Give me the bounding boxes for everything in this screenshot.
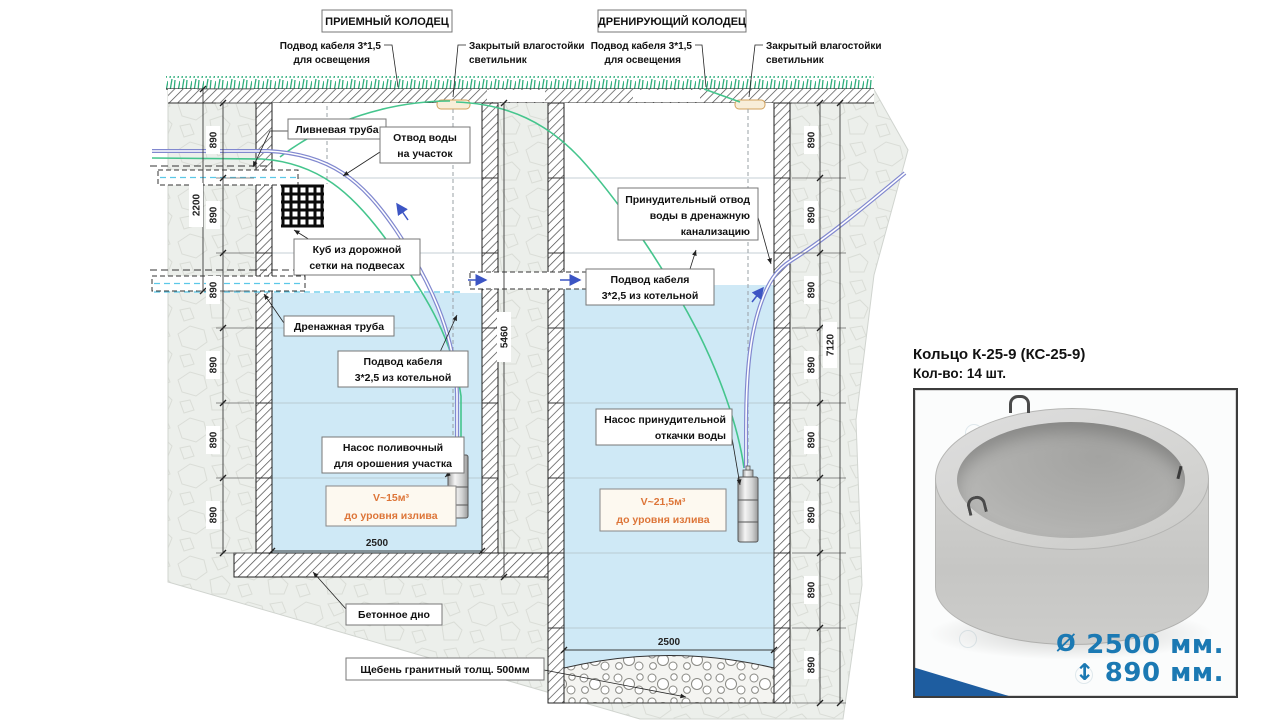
svg-text:Закрытый влагостойки: Закрытый влагостойки (766, 41, 882, 52)
dim-890: 890 (807, 656, 818, 673)
svg-text:Насос принудительной: Насос принудительной (604, 414, 726, 426)
svg-text:до уровня излива: до уровня излива (344, 510, 437, 522)
dim-890: 890 (209, 206, 220, 223)
corner-triangle (914, 657, 1012, 697)
dim-890: 890 (807, 131, 818, 148)
product-count: Кол-во: 14 шт. (913, 366, 1239, 381)
diameter-row: Ø 2500 мм. (1056, 631, 1224, 660)
svg-text:светильник: светильник (469, 55, 528, 66)
product-diameter: 2500 мм. (1086, 631, 1224, 660)
svg-text:для орошения участка: для орошения участка (334, 458, 452, 470)
svg-text:ДРЕНИРУЮЩИЙ КОЛОДЕЦ: ДРЕНИРУЮЩИЙ КОЛОДЕЦ (598, 15, 746, 28)
product-height: 890 мм. (1105, 659, 1224, 688)
storm-pipe-inlet (158, 170, 298, 185)
dim-890: 890 (807, 581, 818, 598)
dim-890: 890 (807, 206, 818, 223)
svg-text:Закрытый влагостойки: Закрытый влагостойки (469, 41, 585, 52)
label-volume-right: V~21,5м³ до уровня излива (600, 489, 726, 531)
left-well-title: ПРИЕМНЫЙ КОЛОДЕЦ (322, 10, 452, 32)
svg-text:V~21,5м³: V~21,5м³ (641, 496, 686, 508)
label-volume-left: V~15м³ до уровня излива (326, 486, 456, 526)
dim-7120: 7120 (826, 333, 837, 356)
dim-890: 890 (209, 506, 220, 523)
product-photo-frame: Ø 2500 мм. ↕ 890 мм. (913, 388, 1238, 698)
height-arrow-icon: ↕ (1075, 661, 1095, 686)
svg-text:Подвод кабеля 3*1,5: Подвод кабеля 3*1,5 (280, 40, 382, 52)
gravel-bed (564, 656, 774, 704)
dim-890: 890 (807, 431, 818, 448)
diameter-icon: Ø (1056, 632, 1076, 657)
product-panel: Кольцо К-25-9 (КС-25-9) Кол-во: 14 шт. Ø… (913, 346, 1239, 698)
concrete-bottom-slab (234, 553, 548, 577)
svg-text:для освещения: для освещения (294, 55, 371, 66)
product-dimensions: Ø 2500 мм. ↕ 890 мм. (1056, 631, 1224, 688)
svg-text:Отвод воды: Отвод воды (393, 132, 457, 144)
svg-text:до уровня излива: до уровня излива (616, 514, 709, 526)
dim-890: 890 (807, 506, 818, 523)
svg-text:3*2,5 из котельной: 3*2,5 из котельной (355, 372, 452, 384)
dim-2500-left: 2500 (366, 538, 389, 549)
svg-text:на участок: на участок (397, 148, 453, 160)
svg-text:Бетонное дно: Бетонное дно (358, 609, 430, 621)
svg-text:3*2,5 из котельной: 3*2,5 из котельной (602, 290, 699, 302)
overflow-pipe (468, 272, 592, 289)
pump-right (738, 466, 758, 542)
label-pump-left: Насос поливочный для орошения участка (322, 437, 464, 477)
svg-text:для освещения: для освещения (605, 55, 682, 66)
svg-text:Подвод кабеля 3*1,5: Подвод кабеля 3*1,5 (591, 40, 693, 52)
drain-pipe-inlet (152, 276, 305, 291)
dim-890: 890 (807, 281, 818, 298)
svg-text:канализацию: канализацию (681, 226, 750, 238)
svg-text:светильник: светильник (766, 55, 825, 66)
dim-2200: 2200 (192, 193, 203, 216)
manhole-gap-right (633, 90, 700, 102)
svg-text:Щебень гранитный толщ. 500мм: Щебень гранитный толщ. 500мм (360, 664, 529, 676)
svg-text:сетки на подвесах: сетки на подвесах (309, 260, 405, 272)
dim-890: 890 (807, 356, 818, 373)
dim-890: 890 (209, 356, 220, 373)
dim-890: 890 (209, 431, 220, 448)
right-well-title: ДРЕНИРУЮЩИЙ КОЛОДЕЦ (598, 10, 746, 32)
dim-890: 890 (209, 281, 220, 298)
dim-5460: 5460 (500, 325, 511, 348)
svg-text:Ливневая труба: Ливневая труба (295, 124, 378, 136)
svg-text:Принудительный отвод: Принудительный отвод (625, 194, 750, 206)
well-diagram: 890 890 890 890 890 890 2200 5460 890 89… (0, 0, 910, 720)
manhole-gap-left (487, 90, 545, 102)
height-row: ↕ 890 мм. (1056, 659, 1224, 688)
svg-text:V~15м³: V~15м³ (373, 492, 410, 504)
product-title: Кольцо К-25-9 (КС-25-9) (913, 346, 1239, 363)
svg-text:Насос поливочный: Насос поливочный (343, 442, 443, 454)
svg-text:Подвод кабеля: Подвод кабеля (611, 274, 690, 286)
svg-text:Куб из дорожной: Куб из дорожной (313, 244, 402, 256)
dim-2500-right: 2500 (658, 637, 681, 648)
lifting-loop-icon (1009, 395, 1030, 413)
concrete-ring-hole (957, 422, 1185, 538)
svg-text:Дренажная труба: Дренажная труба (294, 321, 384, 333)
svg-text:Подвод кабеля: Подвод кабеля (364, 356, 443, 368)
svg-text:откачки воды: откачки воды (655, 430, 726, 442)
svg-text:воды в дренажную: воды в дренажную (650, 210, 750, 222)
page: 890 890 890 890 890 890 2200 5460 890 89… (0, 0, 1280, 720)
dim-890: 890 (209, 131, 220, 148)
svg-text:ПРИЕМНЫЙ КОЛОДЕЦ: ПРИЕМНЫЙ КОЛОДЕЦ (325, 15, 449, 28)
